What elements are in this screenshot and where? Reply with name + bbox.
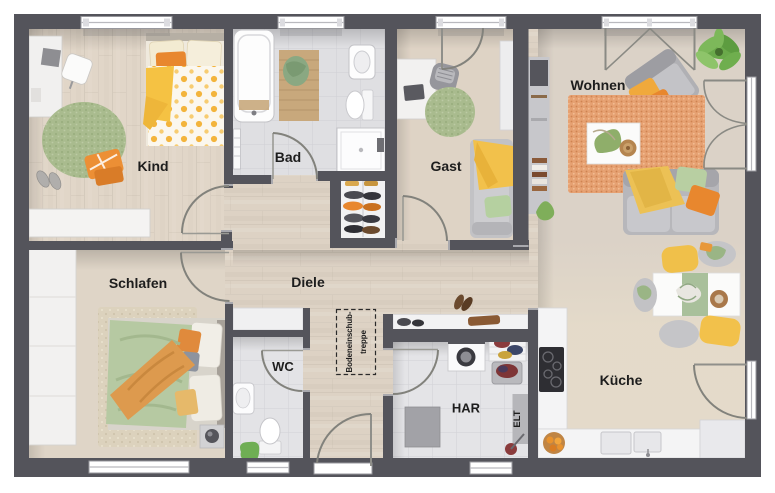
svg-text:ELT: ELT: [512, 410, 523, 427]
svg-text:Küche: Küche: [600, 372, 643, 388]
svg-text:Diele: Diele: [291, 274, 325, 290]
svg-text:Kind: Kind: [137, 158, 168, 174]
svg-text:Schlafen: Schlafen: [109, 275, 167, 291]
svg-text:Wohnen: Wohnen: [571, 77, 626, 93]
svg-text:Gast: Gast: [430, 158, 461, 174]
svg-text:Bad: Bad: [275, 149, 301, 165]
svg-text:HAR: HAR: [452, 401, 481, 416]
svg-text:Bodeneinschub-: Bodeneinschub-: [345, 311, 354, 372]
svg-text:treppe: treppe: [359, 329, 368, 353]
svg-text:WC: WC: [272, 359, 294, 374]
